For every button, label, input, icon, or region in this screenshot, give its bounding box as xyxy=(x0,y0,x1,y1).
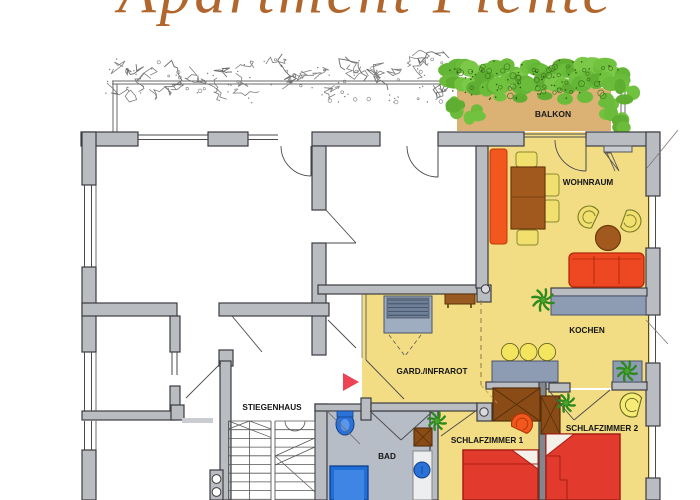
svg-text:SCHLAFZIMMER 1: SCHLAFZIMMER 1 xyxy=(451,436,524,445)
svg-text:BAD: BAD xyxy=(378,452,396,461)
svg-text:Apartment Fichte: Apartment Fichte xyxy=(114,0,610,27)
svg-text:KOCHEN: KOCHEN xyxy=(569,326,605,335)
svg-text:GARD./INFRAROT: GARD./INFRAROT xyxy=(397,367,468,376)
svg-text:WOHNRAUM: WOHNRAUM xyxy=(563,178,614,187)
svg-text:STIEGENHAUS: STIEGENHAUS xyxy=(242,403,302,412)
svg-text:SCHLAFZIMMER 2: SCHLAFZIMMER 2 xyxy=(566,424,639,433)
svg-text:BALKON: BALKON xyxy=(535,109,571,119)
